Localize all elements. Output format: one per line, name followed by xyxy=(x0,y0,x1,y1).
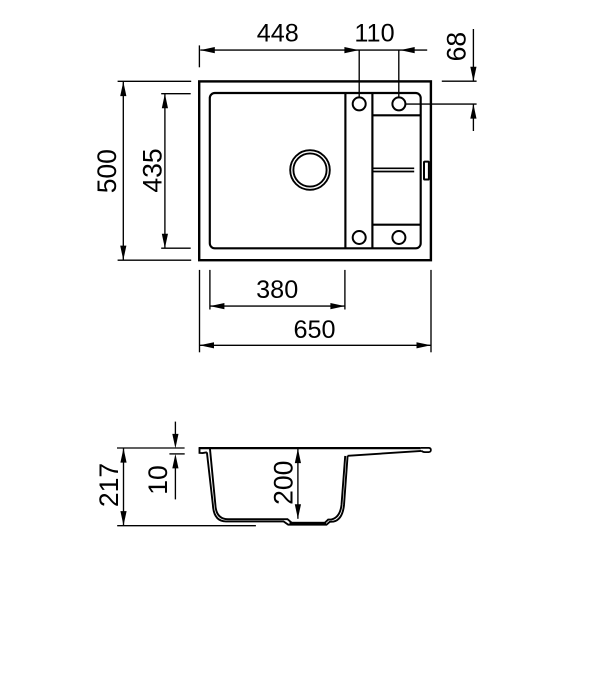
svg-text:110: 110 xyxy=(354,19,394,47)
svg-text:68: 68 xyxy=(442,32,472,61)
svg-text:10: 10 xyxy=(143,465,173,494)
svg-text:650: 650 xyxy=(293,316,335,344)
svg-text:448: 448 xyxy=(257,19,299,47)
svg-text:500: 500 xyxy=(92,149,122,193)
svg-text:200: 200 xyxy=(268,461,298,505)
svg-text:380: 380 xyxy=(256,276,298,304)
svg-text:217: 217 xyxy=(94,463,124,507)
svg-text:435: 435 xyxy=(137,148,167,192)
